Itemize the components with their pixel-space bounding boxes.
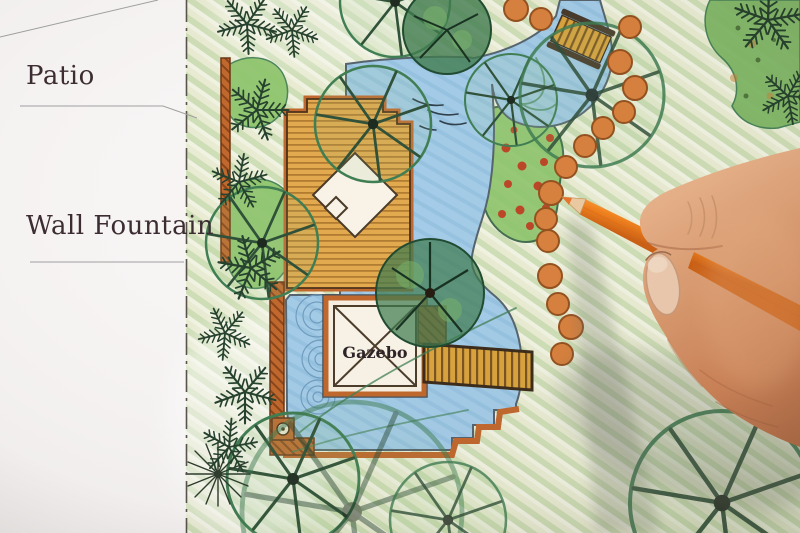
garden-plan-svg: Gazebo <box>0 0 800 533</box>
photo-vignette <box>0 0 800 533</box>
photo-of-garden-plan: Gazebo <box>0 0 800 533</box>
